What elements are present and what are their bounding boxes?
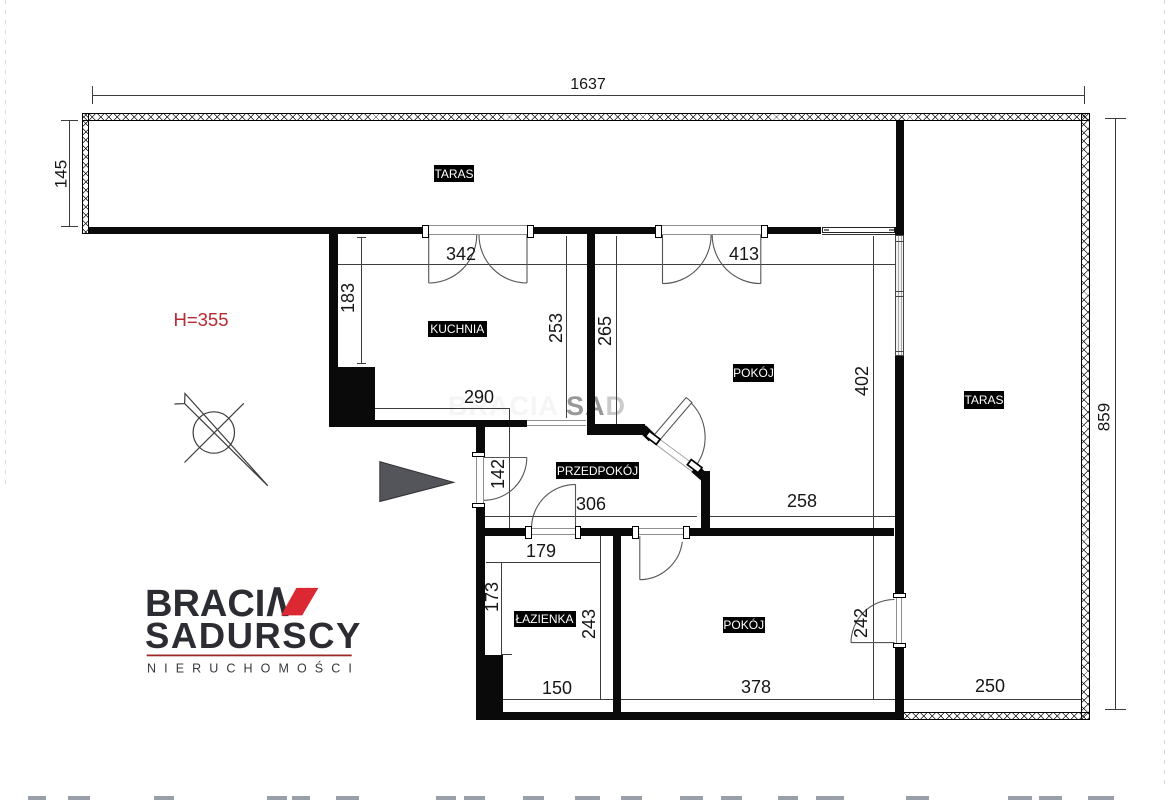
svg-text:NIERUCHOMOŚCI: NIERUCHOMOŚCI [147, 661, 360, 676]
svg-text:SADURSCY: SADURSCY [146, 615, 362, 656]
